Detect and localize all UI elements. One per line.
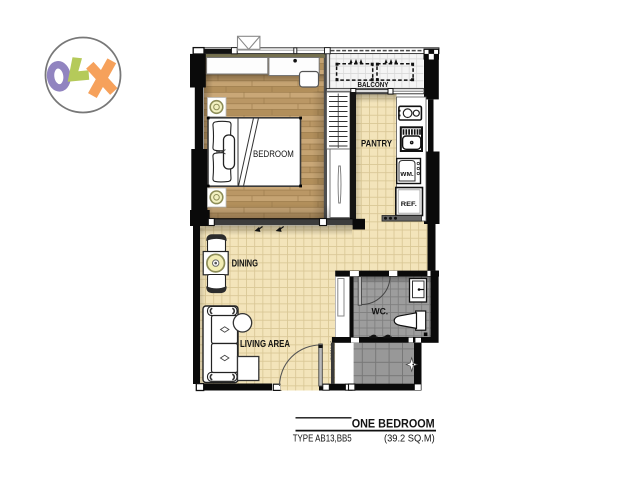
- svg-text:BEDROOM: BEDROOM: [253, 149, 294, 159]
- svg-text:PANTRY: PANTRY: [361, 139, 392, 149]
- svg-text:WC.: WC.: [371, 306, 388, 316]
- svg-text:DINING: DINING: [232, 258, 259, 269]
- svg-text:REF.: REF.: [401, 201, 417, 208]
- svg-text:WM.: WM.: [400, 172, 414, 178]
- svg-text:(39.2 SQ.M): (39.2 SQ.M): [384, 434, 435, 445]
- svg-text:TYPE AB13,BB5: TYPE AB13,BB5: [293, 434, 352, 445]
- svg-text:ONE BEDROOM: ONE BEDROOM: [352, 417, 435, 431]
- svg-text:BALCONY: BALCONY: [358, 80, 389, 89]
- svg-text:LIVING AREA: LIVING AREA: [240, 339, 290, 350]
